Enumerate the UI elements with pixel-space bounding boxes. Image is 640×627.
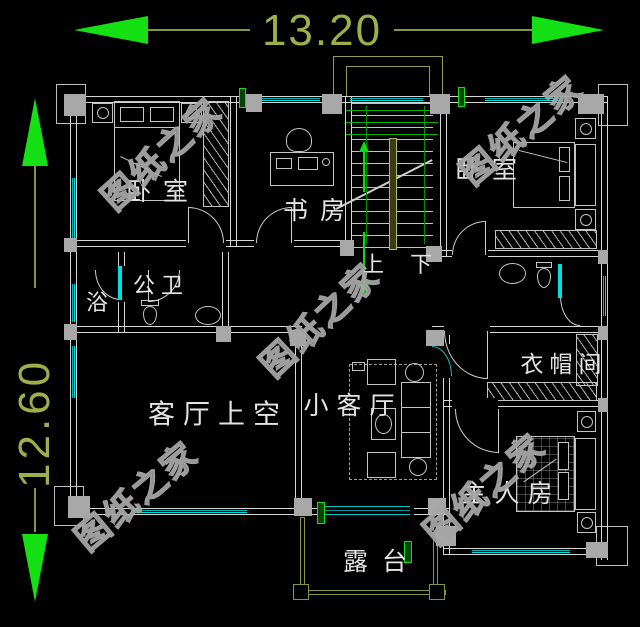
nightstand [575,209,596,230]
bay-window-outline-inner [346,66,430,97]
dimension-line-top [394,29,532,31]
column [598,326,608,340]
window-bay-top [350,96,423,103]
wardrobe-bedroom-right [495,230,597,249]
column [598,398,608,412]
stair-guide-right [424,106,425,244]
sofa [401,382,431,458]
stair-handrail [389,138,397,250]
column [586,542,608,558]
room-label-terrace: 露台 [343,542,421,578]
dimension-line-left [34,166,36,288]
door-bedroom-left [188,207,224,243]
nightstand [575,118,596,139]
column [598,250,608,264]
column-marker [317,502,325,524]
washbasin-right [499,263,526,284]
column [430,94,450,114]
column [64,238,77,252]
armchair [367,452,396,478]
nightstand [577,512,596,533]
dimension-line-top [148,29,250,31]
wall-wc-hall [222,252,229,333]
side-table [409,458,427,476]
column [426,330,444,346]
terrace-post [293,584,309,600]
watermark: 图纸之家 [63,428,208,561]
terrace-sliding-door [322,506,410,515]
terrace-rail-bottom [300,590,446,595]
dimension-line-left [34,488,36,532]
column [64,94,86,116]
headboard-bedroom-right [575,144,596,206]
pillow [558,442,569,470]
desk-item [276,158,292,169]
toilet-bowl-right [537,268,551,288]
stair-up-arrow-icon [359,141,369,152]
stair-label-down: 下 [410,247,432,279]
dimension-arrow-up-icon [22,98,48,166]
stair-up-arrow-line [363,150,365,192]
floor-plan: 13.20 12.60 卧室 书房 卧室 浴 公卫 上 下 衣帽间 客厅上空 小… [0,0,640,627]
sofa-cushion-line [401,432,431,433]
room-label-small-living: 小客厅 [303,386,402,422]
terrace-post [429,584,445,600]
room-label-study: 书房 [283,191,357,227]
nightstand [577,411,596,432]
column [322,94,342,114]
door-bathroom-right [560,296,580,326]
column [246,94,262,112]
window-living-side [70,346,77,398]
dimension-arrow-down-icon [22,534,48,602]
wardrobe-cloakroom-row [487,382,597,401]
room-label-living-void: 客厅上空 [148,393,288,432]
headboard-master [575,438,596,510]
window-bedroom-left-side [70,178,77,240]
wall-bedroom-study [230,96,237,247]
dimension-height-value: 12.60 [10,288,60,488]
plant [405,363,424,382]
door-bedroom-right [452,221,486,255]
room-label-public-wc: 公卫 [133,268,189,300]
column [64,324,77,340]
washbasin [195,306,221,325]
wall-stair-right [440,96,447,257]
nightstand [92,103,113,123]
room-label-cloakroom: 衣帽间 [521,345,608,379]
column [216,326,231,342]
door-leaf-bath [118,266,122,300]
pillow [559,176,570,201]
tv-stand [352,362,365,371]
column-marker [458,87,465,107]
window-bath-side [70,284,77,322]
window-bathroom-right [601,276,608,316]
desk-monitor [298,157,318,170]
room-label-bath: 浴 [86,285,108,317]
toilet-bowl [143,306,157,325]
armchair [367,359,396,385]
column [294,498,312,516]
window-master-bottom [472,548,570,555]
door-leaf-bathroom-right [558,264,562,298]
column-marker [239,88,246,108]
stair-guide-left [366,106,367,244]
desk-chair [286,128,312,152]
desk-lamp [322,158,330,166]
sofa-cushion-line [401,407,431,408]
window-study-top [262,96,320,103]
dimension-width-value: 13.20 [250,6,394,56]
dimension-arrow-right-icon [532,16,604,44]
opening-master-door [452,398,498,409]
dimension-arrow-left-icon [74,16,148,44]
pillow [120,107,144,122]
